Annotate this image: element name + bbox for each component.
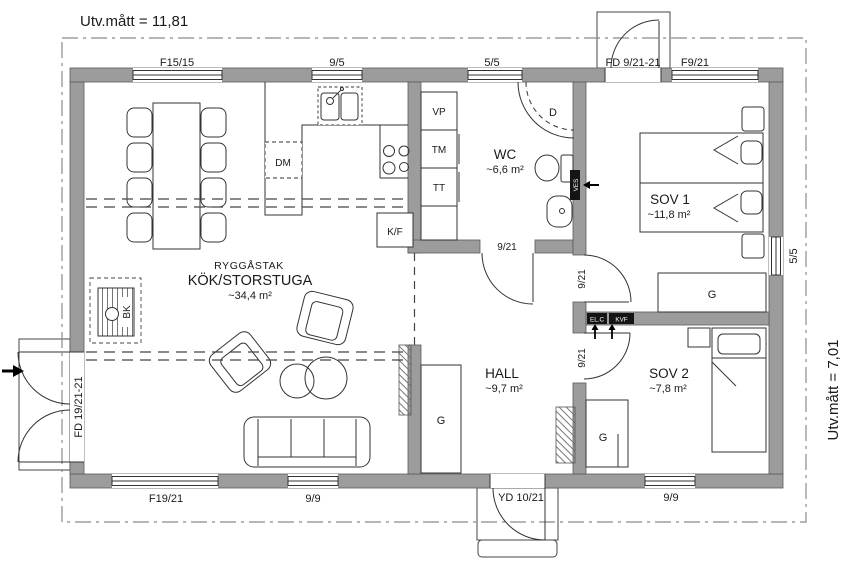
window-label-5-5-side: 5/5 (788, 248, 800, 263)
window-f15 (133, 68, 222, 82)
door-label-sov2: 9/21 (577, 348, 588, 368)
door-label-sov1: 9/21 (577, 269, 588, 289)
floor-plan-page: Utv.mått = 11,81 Utv.mått = 7,01 F15/15 … (0, 0, 864, 576)
round-table (280, 364, 314, 398)
fixture-label-dishwasher: DM (275, 158, 291, 169)
wardrobe-label-hall: G (437, 415, 446, 427)
chair (127, 213, 152, 242)
door-label-entry-hall: YD 10/21 (498, 492, 544, 504)
round-table (305, 357, 347, 399)
room-label-main: KÖK/STORSTUGA (188, 271, 313, 289)
chair (127, 143, 152, 172)
window-9-5 (312, 68, 362, 82)
nightstand (688, 328, 710, 347)
kitchen (127, 82, 413, 249)
chair (201, 178, 226, 207)
fireplace (90, 278, 141, 343)
washbasin (547, 196, 572, 227)
chair (127, 178, 152, 207)
window-label-f15: F15/15 (160, 57, 194, 69)
dining-table (153, 103, 200, 249)
door-sov1 (584, 255, 631, 302)
window-label-9-9-living: 9/9 (305, 493, 320, 505)
wardrobe-label-sov1: G (708, 289, 717, 301)
media-bench (399, 345, 411, 415)
toilet (535, 155, 573, 182)
dimension-top-label: Utv.mått = 11,81 (80, 13, 188, 30)
room-label-wc: WC (494, 147, 517, 162)
wall-corridor-upper (573, 82, 586, 255)
room-area-hall: ~9,7 m² (485, 383, 523, 395)
fixture-label-shower: D (549, 107, 557, 119)
dimension-right-label: Utv.mått = 7,01 (825, 339, 842, 440)
fixture-label-el-central: EL.C (590, 317, 604, 324)
window-label-f921: F9/21 (681, 57, 709, 69)
window-label-9-9-sov2: 9/9 (663, 492, 678, 504)
wall-wc-south-left (408, 240, 480, 253)
fixture-label-fridge-freezer: K/F (387, 227, 403, 238)
wall-corridor-mid (573, 302, 586, 333)
wall-wc-south-right (535, 240, 573, 253)
room-area-main: ~34,4 m² (228, 290, 272, 302)
room-area-sov2: ~7,8 m² (649, 383, 687, 395)
door-opening-entry-top (605, 68, 661, 82)
coat-rack (556, 407, 575, 463)
stove (380, 125, 409, 178)
room-label-hall: HALL (485, 366, 519, 381)
sink (318, 87, 362, 125)
single-bed (712, 328, 766, 452)
fixture-label-washing-machine: TM (432, 145, 446, 156)
nightstand (742, 234, 764, 258)
fixture-label-water-heater: VP (432, 107, 446, 118)
nightstand (742, 107, 764, 131)
door-label-entry-top: FD 9/21-21 (605, 57, 660, 69)
wardrobe-label-sov2: G (599, 432, 608, 444)
up-arrow-icon (609, 324, 616, 339)
window-label-5-5-top: 5/5 (484, 57, 499, 69)
window-f921 (672, 68, 758, 82)
armchair (206, 328, 274, 395)
armchair (295, 290, 355, 347)
door-label-wc: 9/21 (497, 242, 517, 253)
roof-note-label: RYGGÅSTAK (214, 259, 284, 272)
window-f1921 (112, 474, 218, 488)
sofa (244, 417, 370, 467)
chair (127, 108, 152, 137)
fixture-label-fireplace: BK (122, 305, 133, 319)
bench-box (421, 206, 457, 240)
room-label-sov2: SOV 2 (649, 366, 689, 381)
floor-plan-svg: Utv.mått = 11,81 Utv.mått = 7,01 F15/15 … (0, 0, 864, 576)
room-area-sov1: ~11,8 m² (648, 209, 691, 221)
window-9-9-living (288, 474, 338, 488)
chair (201, 143, 226, 172)
door-opening-entry-hall (490, 474, 545, 488)
window-9-9-sov2 (645, 474, 695, 488)
chair (201, 213, 226, 242)
living-area (90, 278, 411, 467)
chair (201, 108, 226, 137)
up-arrow-icon (592, 324, 599, 339)
room-label-sov1: SOV 1 (650, 192, 690, 207)
shower (518, 82, 574, 138)
fixture-label-dryer: TT (433, 183, 445, 194)
door-wc (482, 253, 533, 304)
door-label-entry-left: FD 19/21-21 (73, 376, 85, 437)
fixture-label-ves: VES (573, 179, 580, 192)
window-5-5-top (468, 68, 522, 82)
dining-set (127, 103, 226, 249)
wall-east (769, 82, 783, 474)
window-5-5-side (769, 237, 783, 275)
window-label-9-5: 9/5 (329, 57, 344, 69)
fixture-label-kvf: KVF (615, 317, 627, 324)
door-sov2 (584, 333, 630, 379)
room-area-wc: ~6,6 m² (486, 164, 524, 176)
window-label-f1921: F19/21 (149, 493, 183, 505)
